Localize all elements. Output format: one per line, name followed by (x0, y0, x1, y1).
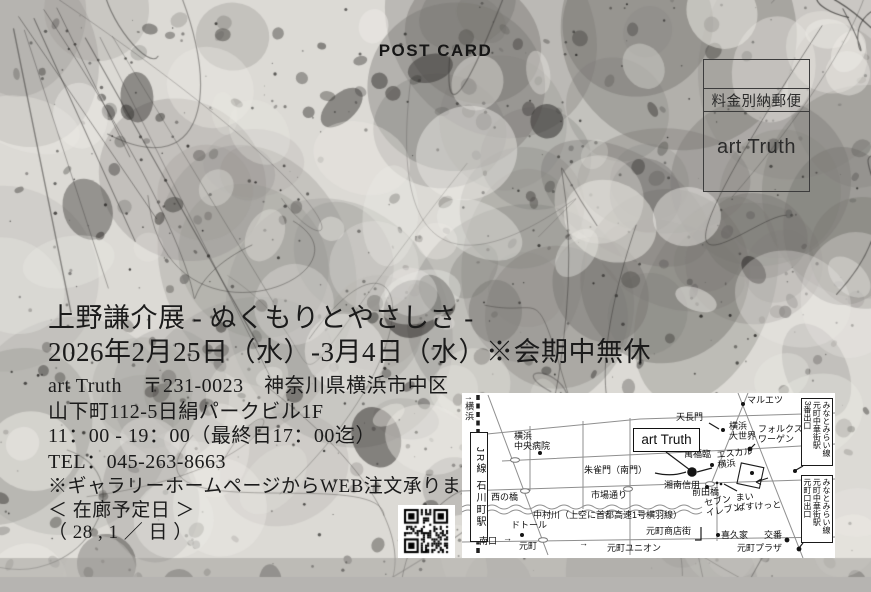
tenchomon-gate: 天長門 (676, 412, 703, 422)
volkswagen: フォルクス ワーゲン (758, 424, 803, 444)
gallery-address-line1: art Truth 〒231-0023 神奈川県横浜市中区 (48, 369, 449, 398)
opening-hours: 11：00 - 19：00（最終日17：00迄） (48, 419, 376, 448)
stamp-box-postage-label: 料金別納郵便 (704, 89, 809, 112)
exhibition-dates: 2026年2月25日（水）-3月4日（水）※会期中無休 (48, 330, 651, 369)
postcard: POST CARD 料金別納郵便 art Truth 上野謙介展 - ぬくもりと… (0, 0, 871, 592)
yokohama-chuo-hospital: 横浜 中央病院 (514, 431, 550, 451)
stamp-box-empty-section (704, 60, 809, 89)
escal-yokohama: エスカル 横浜 (716, 446, 754, 470)
artist-attendance-days: （ 28 , 1 ／ 日 ） (48, 517, 193, 544)
web-order-note: ※ギャラリーホームページからWEB注文承ります (48, 471, 481, 498)
telephone-number: TEL：045-263-8663 (48, 445, 226, 474)
motomachi-shotengai: 元町商店街 (646, 526, 691, 536)
motomachi-union: 元町ユニオン (607, 543, 661, 553)
maruetsu: マルエツ (747, 395, 783, 405)
station-jr-ishikawacho: JR線 石川町駅 (470, 432, 488, 542)
koban-police-box: 交番 (764, 530, 782, 540)
postcard-title: POST CARD (0, 41, 871, 61)
access-map: ↑横浜JR線 石川町駅横浜 中央病院西の橋市場通り中村川（上空に首都高速1号横羽… (462, 393, 835, 558)
nakamura-river: 中村川（上空に首都高速1号横羽線） (533, 510, 682, 520)
motomachi: 元町 (519, 541, 537, 551)
exit-box-no3: みなとみらい線 元町中華街駅 3番出口 (801, 398, 833, 466)
stamp-box-sender-name: art Truth (704, 112, 809, 190)
exit-box-motomachiguchi: みなとみらい線 元町中華街駅 元町口出口 (801, 475, 833, 543)
ichiba-dori: 市場通り (591, 490, 627, 500)
arrow-left-street: → (503, 533, 512, 543)
suzakumon-gate: 朱雀門（南門） (584, 465, 647, 475)
motomachi-plaza: 元町プラザ (737, 543, 782, 553)
arrow-mid-street: → (579, 538, 588, 548)
doutor: ドトール (511, 520, 547, 530)
art-truth-gallery-box: art Truth (633, 428, 700, 452)
minamiguchi-exit: 南口 (479, 536, 497, 546)
yokohama-daisekai: 横浜 大世界 (729, 421, 756, 441)
kikuya: 喜久家 (721, 530, 748, 540)
my-basket: まい ばすけっと (735, 489, 781, 512)
nishinohashi-bridge: 西の橋 (491, 492, 518, 502)
postage-paid-stamp-box: 料金別納郵便 art Truth (703, 59, 810, 192)
qr-code-icon (398, 505, 455, 558)
yokohama-direction: ↑横浜 (464, 396, 474, 422)
